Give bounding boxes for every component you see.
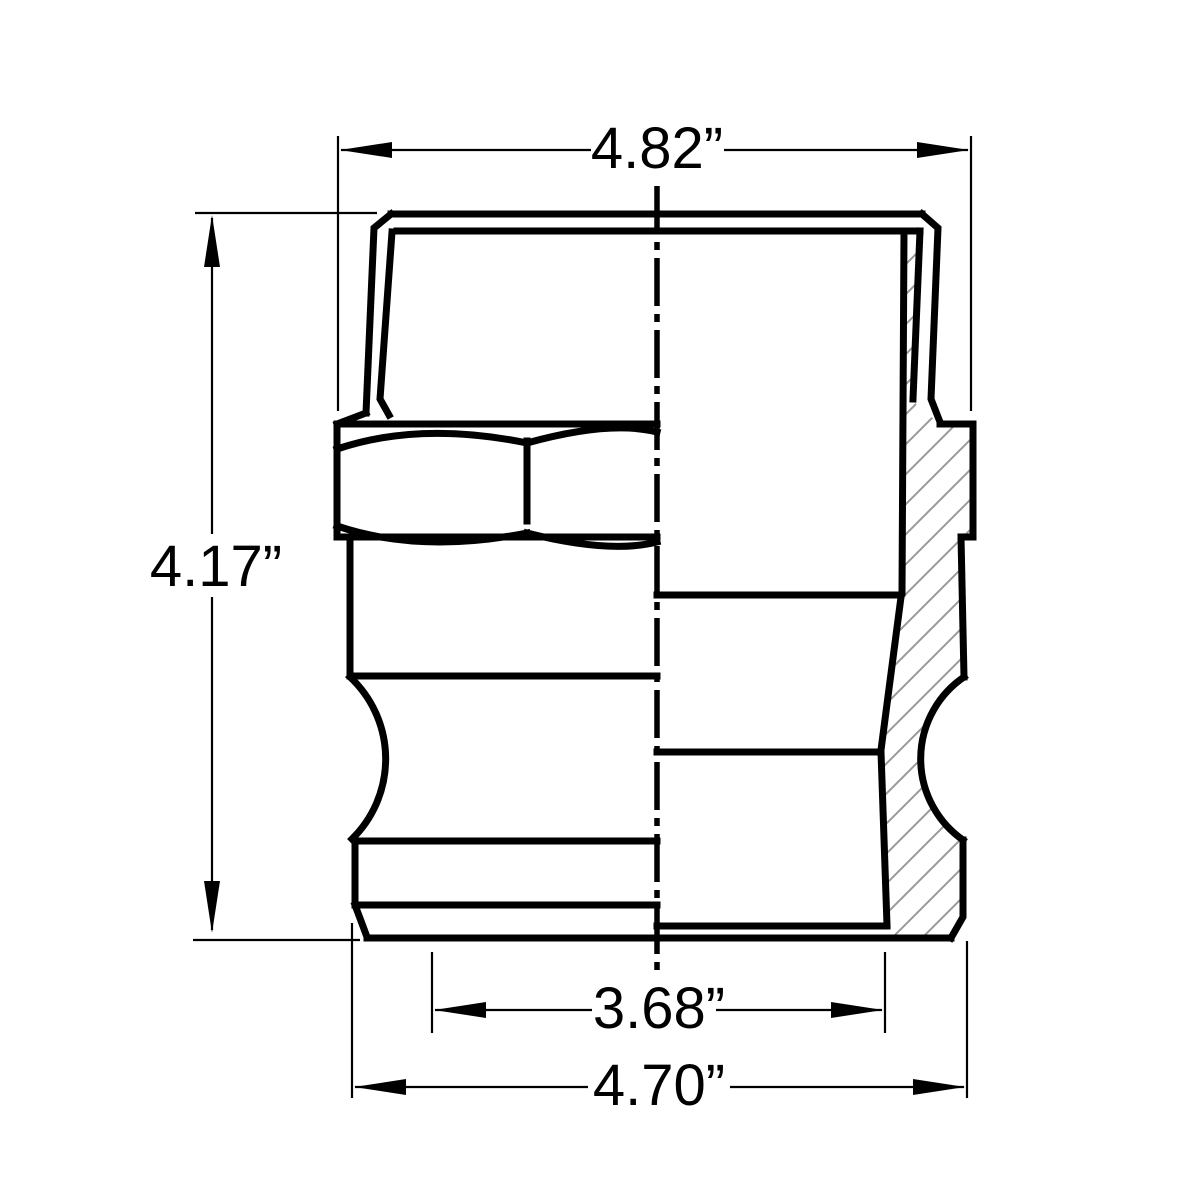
drawing-canvas: 4.82” 4.17” 3.68”	[0, 0, 1200, 1200]
dimension-label-top-width: 4.82”	[591, 116, 723, 181]
dimension-label-inner-bottom-width: 3.68”	[593, 976, 725, 1041]
bore-wall-upper	[902, 231, 904, 593]
technical-drawing: 4.82” 4.17” 3.68”	[0, 0, 1200, 1200]
flange-right-edge	[961, 537, 964, 677]
dimension-label-overall-height: 4.17”	[150, 534, 282, 599]
dimension-label-bottom-width: 4.70”	[593, 1053, 725, 1118]
